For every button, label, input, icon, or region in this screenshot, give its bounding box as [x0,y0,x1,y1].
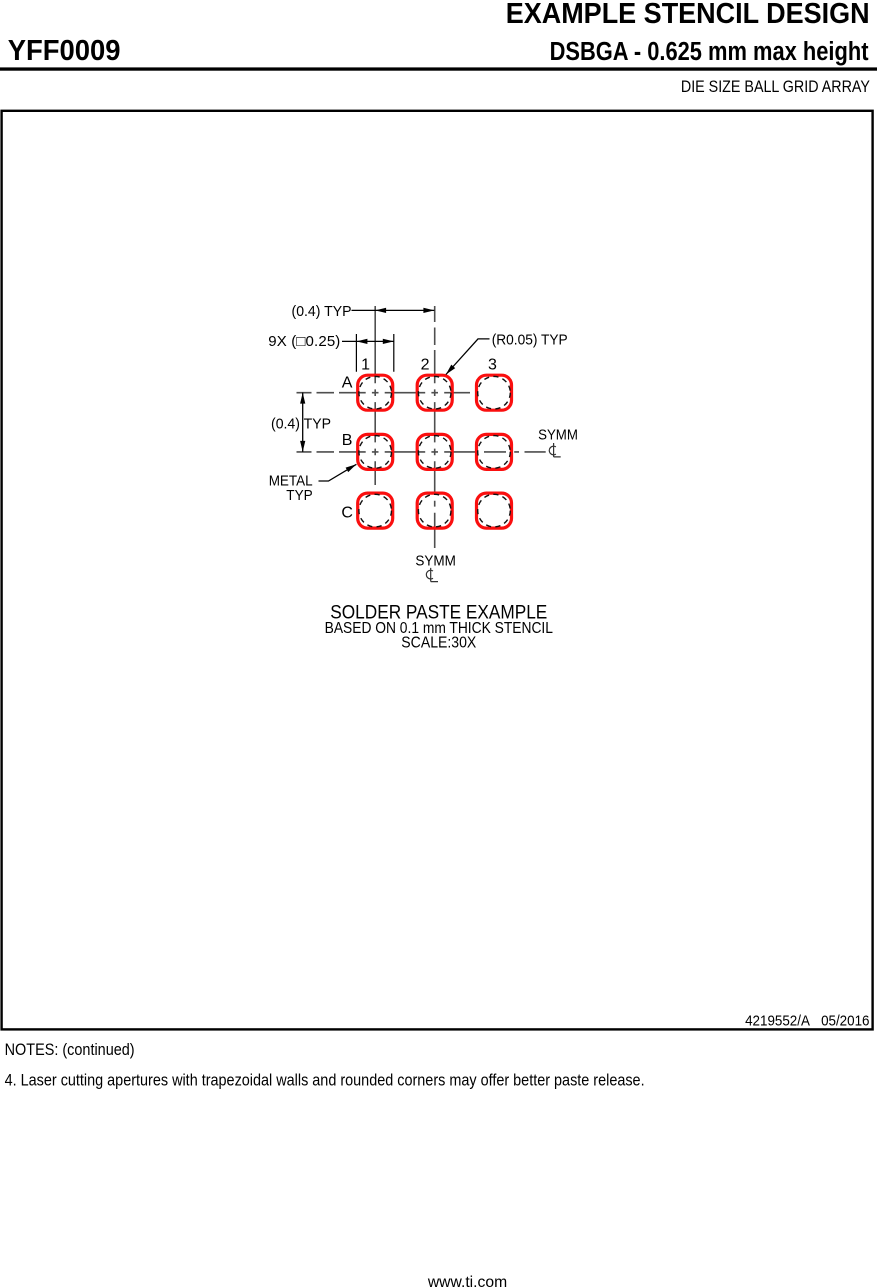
svg-text:(R0.05) TYP: (R0.05) TYP [492,332,568,349]
svg-text:www.ti.com: www.ti.com [427,1274,507,1288]
svg-text:1: 1 [361,357,370,374]
svg-text:NOTES: (continued): NOTES: (continued) [5,1040,135,1059]
svg-text:2: 2 [421,357,430,374]
svg-text:A: A [342,374,353,391]
svg-text:EXAMPLE STENCIL DESIGN: EXAMPLE STENCIL DESIGN [506,0,870,29]
svg-text:DSBGA - 0.625 mm max height: DSBGA - 0.625 mm max height [550,36,869,66]
svg-text:SYMM: SYMM [415,552,456,569]
svg-text:(0.4) TYP: (0.4) TYP [292,303,352,320]
svg-text:3: 3 [488,357,497,374]
svg-text:4219552/A 05/2016: 4219552/A 05/2016 [745,1013,869,1029]
svg-text:(0.4) TYP: (0.4) TYP [271,415,331,432]
svg-text:SCALE:30X: SCALE:30X [401,635,476,652]
svg-text:9X (□0.25): 9X (□0.25) [268,333,340,350]
svg-text:4. Laser cutting apertures wit: 4. Laser cutting apertures with trapezoi… [5,1071,645,1090]
svg-text:B: B [342,432,353,449]
svg-text:YFF0009: YFF0009 [8,34,121,66]
svg-text:C: C [341,504,353,521]
svg-text:TYP: TYP [286,487,312,504]
svg-text:DIE SIZE BALL GRID ARRAY: DIE SIZE BALL GRID ARRAY [681,77,870,96]
svg-text:SYMM: SYMM [538,426,578,443]
